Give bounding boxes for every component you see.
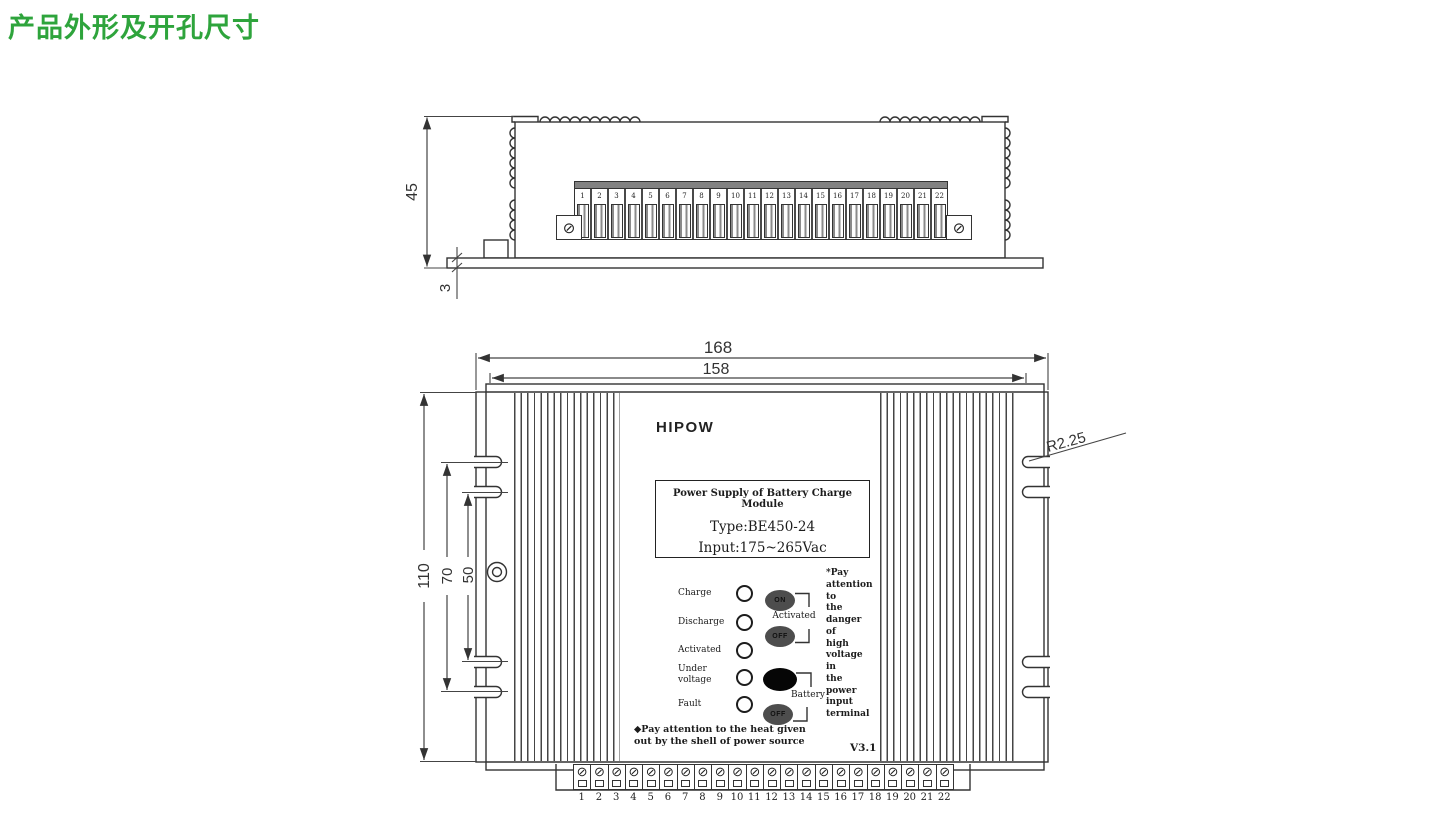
high-voltage-warning: *Payattentiontothedangerofhighvoltageint…: [826, 568, 880, 721]
led-label-undervoltage: Under voltage: [678, 664, 712, 685]
bottom-terminal-cell: ⊘: [918, 764, 936, 790]
terminal-number: 17: [849, 792, 866, 808]
terminal-cell: 17: [847, 189, 864, 239]
switch-group-activated-label: Activated: [763, 611, 825, 621]
screw-icon: ⊘: [836, 765, 847, 779]
bottom-terminal-cell: ⊘: [867, 764, 885, 790]
label-title: Power Supply of Battery Charge Module: [656, 488, 869, 510]
terminal-clamp: [832, 204, 844, 238]
front-face-panel: HIPOW Power Supply of Battery Charge Mod…: [620, 392, 880, 762]
terminal-slot: [681, 780, 690, 787]
terminal-cell: 6: [660, 189, 677, 239]
terminal-slot: [595, 780, 604, 787]
right-bumps-lower: [1005, 200, 1010, 240]
left-bumps-upper: [510, 128, 515, 188]
warning-line: high: [826, 639, 880, 651]
terminal-slot: [578, 780, 587, 787]
terminal-clamp: [730, 204, 742, 238]
bottom-terminal-cell: ⊘: [849, 764, 867, 790]
led-discharge: [736, 614, 753, 631]
terminal-number: 18: [867, 792, 884, 808]
bottom-terminal-cell: ⊘: [573, 764, 591, 790]
led-label-charge: Charge: [678, 588, 738, 599]
terminal-number: 22: [936, 792, 953, 808]
screw-icon: ⊘: [953, 219, 966, 237]
terminal-slot: [854, 780, 863, 787]
terminal-number: 10: [728, 189, 743, 203]
dim-158: 158: [703, 361, 730, 378]
terminal-slot: [819, 780, 828, 787]
page-title: 产品外形及开孔尺寸: [8, 6, 260, 45]
terminal-number: 6: [659, 792, 676, 808]
terminal-number: 19: [884, 792, 901, 808]
terminal-number: 4: [626, 189, 641, 203]
terminal-clamp: [713, 204, 725, 238]
terminal-slot: [664, 780, 673, 787]
screw-icon: ⊘: [680, 765, 691, 779]
strip-end-screw-right: ⊘: [946, 215, 972, 240]
terminal-slot: [768, 780, 777, 787]
bottom-terminal-cells: ⊘ ⊘ ⊘ ⊘ ⊘ ⊘ ⊘ ⊘ ⊘ ⊘: [573, 764, 953, 790]
terminal-cell: 15: [813, 189, 830, 239]
notch-right-2: [1023, 487, 1050, 498]
label-input: Input:175~265Vac: [656, 540, 869, 556]
terminal-number: 13: [780, 792, 797, 808]
terminal-number: 5: [642, 792, 659, 808]
terminal-number: 3: [608, 792, 625, 808]
screw-icon: ⊘: [663, 765, 674, 779]
terminal-number: 1: [575, 189, 590, 203]
terminal-slot: [733, 780, 742, 787]
screw-icon: ⊘: [577, 765, 588, 779]
terminal-slot: [871, 780, 880, 787]
terminal-number: 22: [932, 189, 947, 203]
top-bumps-right: [880, 117, 980, 122]
warning-line: danger: [826, 615, 880, 627]
bottom-terminal-cell: ⊘: [901, 764, 919, 790]
dim-168: 168: [704, 338, 732, 357]
led-activated: [736, 642, 753, 659]
left-bumps-lower: [510, 200, 515, 240]
terminal-clamp: [747, 204, 759, 238]
warning-line: terminal: [826, 709, 880, 721]
screw-icon: ⊘: [732, 765, 743, 779]
bottom-terminal-cell: ⊘: [694, 764, 712, 790]
terminal-slot: [785, 780, 794, 787]
terminal-number: 14: [797, 792, 814, 808]
screw-icon: ⊘: [939, 765, 950, 779]
terminal-slot: [888, 780, 897, 787]
screw-icon: ⊘: [698, 765, 709, 779]
terminal-slot: [802, 780, 811, 787]
screw-icon: ⊘: [767, 765, 778, 779]
terminal-cell: 12: [762, 189, 779, 239]
notch-right-4: [1023, 687, 1050, 698]
terminal-clamp: [815, 204, 827, 238]
terminal-strip-top-bar: [575, 182, 947, 189]
bottom-terminal-cell: ⊘: [590, 764, 608, 790]
top-terminal-strip: 1 2 3 4 5 6 7 8: [574, 181, 948, 240]
product-label-box: Power Supply of Battery Charge Module Ty…: [655, 480, 870, 558]
terminal-cell: 11: [745, 189, 762, 239]
screw-icon: ⊘: [818, 765, 829, 779]
terminal-number: 21: [915, 189, 930, 203]
terminal-clamp: [645, 204, 657, 238]
terminal-number: 16: [830, 189, 845, 203]
terminal-number: 9: [711, 792, 728, 808]
terminal-clamp: [883, 204, 895, 238]
screw-icon: ⊘: [749, 765, 760, 779]
screw-icon: ⊘: [870, 765, 881, 779]
terminal-cell: 20: [898, 189, 915, 239]
terminal-number: 18: [864, 189, 879, 203]
top-terminal-cells: 1 2 3 4 5 6 7 8: [575, 189, 947, 239]
right-bumps-upper: [1005, 128, 1010, 188]
dim-70: 70: [439, 568, 456, 585]
bottom-terminal-cell: ⊘: [746, 764, 764, 790]
strip-end-screw-left: ⊘: [556, 215, 582, 240]
terminal-number: 7: [677, 189, 692, 203]
bottom-terminal-cell: ⊘: [642, 764, 660, 790]
screw-icon: ⊘: [784, 765, 795, 779]
terminal-number: 12: [763, 792, 780, 808]
terminal-cell: 3: [609, 189, 626, 239]
warning-line: in: [826, 662, 880, 674]
bottom-terminal-cell: ⊘: [832, 764, 850, 790]
led-fault: [736, 696, 753, 713]
terminal-slot: [750, 780, 759, 787]
warning-line: input: [826, 697, 880, 709]
terminal-cell: 8: [694, 189, 711, 239]
screw-icon: ⊘: [611, 765, 622, 779]
terminal-slot: [612, 780, 621, 787]
brand-logo: HIPOW: [656, 419, 714, 436]
terminal-cell: 19: [881, 189, 898, 239]
led-label-discharge: Discharge: [678, 617, 738, 628]
terminal-number: 11: [746, 792, 763, 808]
terminal-number: 13: [779, 189, 794, 203]
heatsink-fins-left: [514, 393, 620, 761]
terminal-cell: 13: [779, 189, 796, 239]
terminal-number: 21: [918, 792, 935, 808]
screw-icon: ⊘: [628, 765, 639, 779]
heat-note-line2: out by the shell of power source: [634, 736, 824, 748]
warning-line: to: [826, 592, 880, 604]
terminal-clamp: [917, 204, 929, 238]
led-label-fault: Fault: [678, 699, 738, 710]
top-view-tab-right: [982, 117, 1008, 123]
terminal-slot: [923, 780, 932, 787]
terminal-clamp: [764, 204, 776, 238]
screw-icon: ⊘: [646, 765, 657, 779]
terminal-cell: 16: [830, 189, 847, 239]
bottom-terminal-cell: ⊘: [677, 764, 695, 790]
terminal-cell: 21: [915, 189, 932, 239]
terminal-clamp: [679, 204, 691, 238]
terminal-cell: 4: [626, 189, 643, 239]
top-view-base-plate: [447, 258, 1043, 268]
bottom-terminal-cell: ⊘: [625, 764, 643, 790]
warning-line: attention: [826, 580, 880, 592]
technical-drawing-page: 45 3: [0, 0, 1440, 832]
bottom-terminal-cell: ⊘: [763, 764, 781, 790]
switch-on-button[interactable]: ON: [765, 590, 795, 611]
terminal-number: 17: [847, 189, 862, 203]
terminal-clamp: [696, 204, 708, 238]
terminal-cell: 7: [677, 189, 694, 239]
heat-note-line1: ◆Pay attention to the heat given: [634, 724, 824, 736]
warning-line: voltage: [826, 650, 880, 662]
top-bumps-left: [540, 117, 640, 122]
screw-icon: ⊘: [887, 765, 898, 779]
switch-off-button-2[interactable]: OFF: [763, 704, 793, 725]
heatsink-fins-right: [880, 393, 1018, 761]
terminal-number: 7: [677, 792, 694, 808]
dim-radius: R2.25: [1045, 429, 1088, 456]
led-undervoltage: [736, 669, 753, 686]
terminal-number: 5: [643, 189, 658, 203]
terminal-clamp: [934, 204, 946, 238]
warning-line: of: [826, 627, 880, 639]
terminal-slot: [629, 780, 638, 787]
led-charge: [736, 585, 753, 602]
bottom-terminal-cell: ⊘: [884, 764, 902, 790]
label-type: Type:BE450-24: [656, 519, 869, 535]
terminal-number: 6: [660, 189, 675, 203]
terminal-slot: [698, 780, 707, 787]
terminal-clamp: [628, 204, 640, 238]
terminal-number: 15: [813, 189, 828, 203]
dim-45: 45: [404, 183, 421, 201]
screw-icon: ⊘: [801, 765, 812, 779]
screw-icon: ⊘: [715, 765, 726, 779]
terminal-cell: 14: [796, 189, 813, 239]
bottom-terminal-cell: ⊘: [815, 764, 833, 790]
terminal-number: 10: [728, 792, 745, 808]
terminal-slot: [647, 780, 656, 787]
bottom-terminal-cell: ⊘: [711, 764, 729, 790]
bottom-terminal-cell: ⊘: [780, 764, 798, 790]
dim-3: 3: [437, 284, 454, 292]
terminal-number: 12: [762, 189, 777, 203]
terminal-clamp: [662, 204, 674, 238]
terminal-cell: 22: [932, 189, 947, 239]
dim-110: 110: [416, 563, 433, 589]
top-view-dimensions: [424, 117, 514, 300]
terminal-cell: 2: [592, 189, 609, 239]
terminal-slot: [906, 780, 915, 787]
screw-icon: ⊘: [563, 219, 576, 237]
screw-icon: ⊘: [905, 765, 916, 779]
terminal-clamp: [849, 204, 861, 238]
bottom-terminal-numbers: 12345678910111213141516171819202122: [573, 792, 953, 808]
warning-line: *Pay: [826, 568, 880, 580]
terminal-number: 20: [898, 189, 913, 203]
screw-icon: ⊘: [853, 765, 864, 779]
battery-button[interactable]: [763, 668, 797, 691]
switch-off-button-1[interactable]: OFF: [765, 626, 795, 647]
screw-icon: ⊘: [922, 765, 933, 779]
bottom-terminal-cell: ⊘: [936, 764, 954, 790]
warning-line: the: [826, 674, 880, 686]
terminal-number: 20: [901, 792, 918, 808]
terminal-number: 16: [832, 792, 849, 808]
terminal-slot: [716, 780, 725, 787]
terminal-cell: 5: [643, 189, 660, 239]
warning-line: the: [826, 603, 880, 615]
terminal-number: 8: [694, 792, 711, 808]
top-view-foot: [484, 240, 508, 258]
terminal-number: 9: [711, 189, 726, 203]
terminal-clamp: [900, 204, 912, 238]
terminal-number: 15: [815, 792, 832, 808]
heat-warning-note: ◆Pay attention to the heat given out by …: [634, 724, 824, 747]
terminal-slot: [940, 780, 949, 787]
version-badge: V3.1: [850, 742, 876, 754]
notch-right-3: [1023, 657, 1050, 668]
terminal-number: 4: [625, 792, 642, 808]
led-label-activated: Activated: [678, 645, 738, 656]
terminal-cell: 18: [864, 189, 881, 239]
terminal-number: 19: [881, 189, 896, 203]
bottom-terminal-cell: ⊘: [659, 764, 677, 790]
terminal-number: 2: [590, 792, 607, 808]
terminal-clamp: [866, 204, 878, 238]
terminal-number: 11: [745, 189, 760, 203]
terminal-number: 8: [694, 189, 709, 203]
bottom-terminal-cell: ⊘: [728, 764, 746, 790]
terminal-number: 3: [609, 189, 624, 203]
terminal-clamp: [781, 204, 793, 238]
terminal-clamp: [594, 204, 606, 238]
screw-hole-inner: [493, 568, 502, 577]
terminal-clamp: [611, 204, 623, 238]
terminal-cell: 9: [711, 189, 728, 239]
terminal-number: 14: [796, 189, 811, 203]
screw-icon: ⊘: [594, 765, 605, 779]
top-view-tab-left: [512, 117, 538, 123]
terminal-number: 2: [592, 189, 607, 203]
dim-50: 50: [460, 567, 477, 584]
terminal-cell: 10: [728, 189, 745, 239]
terminal-number: 1: [573, 792, 590, 808]
terminal-slot: [837, 780, 846, 787]
terminal-clamp: [798, 204, 810, 238]
notch-right-1: [1023, 457, 1050, 468]
warning-line: power: [826, 686, 880, 698]
bottom-terminal-cell: ⊘: [608, 764, 626, 790]
bottom-terminal-cell: ⊘: [797, 764, 815, 790]
